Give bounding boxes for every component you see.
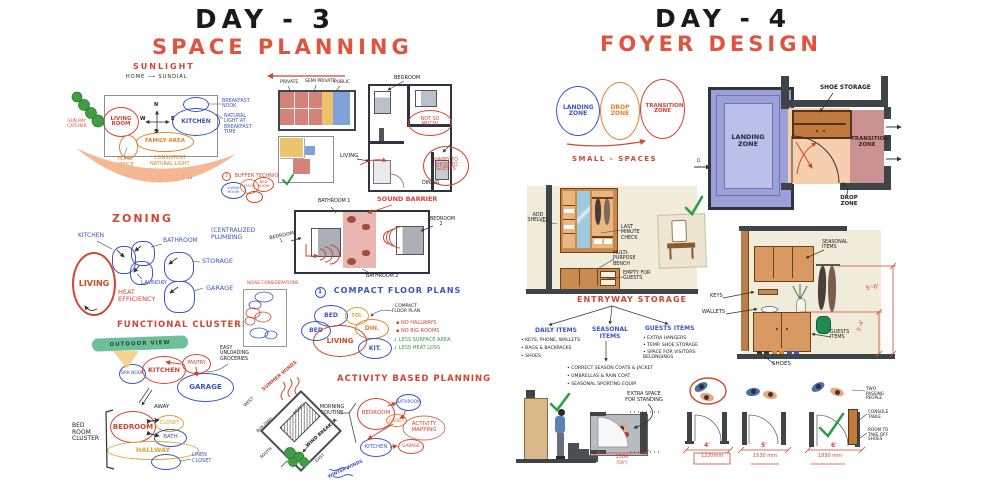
person-top-head: [816, 384, 821, 389]
sink-fixture: [362, 224, 370, 230]
plan-wall: [884, 166, 891, 184]
sketchbook-canvas: DAY - 3 SPACE PLANNING SUNLIGHT HOME ⟶ S…: [0, 0, 1005, 487]
hanging-coat: [828, 266, 836, 312]
compass-w: W: [140, 117, 146, 123]
width3-mm: 1830 mm: [812, 454, 848, 460]
bed: [415, 90, 437, 107]
morning-routine-label: MORNING ROUTINE: [318, 405, 346, 416]
wall-post: [546, 185, 552, 289]
drop-zone-bubble: DROP ZONE: [600, 82, 640, 140]
zoning-laundry-bubble: [130, 261, 153, 285]
person-top-head: [768, 392, 773, 397]
linen-closet-bubble: [151, 454, 181, 470]
site-north-label: NORTH: [292, 403, 306, 416]
cabinet-handle: [776, 328, 778, 330]
compact-note-4: ↓ LESS HEAT LOSS: [393, 346, 440, 352]
plan-wall: [280, 158, 304, 159]
plan-wall: [742, 412, 747, 445]
sink-fixture: [362, 250, 370, 256]
zoning-storage-label: STORAGE: [202, 258, 233, 265]
width3-ft: 6': [824, 443, 844, 450]
buffer-bedroom-bubble: BED ROOM: [253, 177, 274, 192]
seasonal-items-note: SEASONAL ITEMS: [822, 240, 854, 251]
compact-din-bubble: DIN.: [355, 319, 389, 339]
compact-number-icon: 1: [315, 287, 326, 298]
zoning-living-bubble: LIVING: [72, 252, 116, 316]
cluster-bedroom-bubble: BEDROOM: [110, 411, 156, 443]
guests-items-title: GUESTS ITEMS: [645, 326, 694, 333]
wind-breaker-trees-icon: [285, 448, 309, 467]
pantry-bubble: PANTRY: [182, 354, 211, 374]
console-leg: [691, 248, 693, 259]
sun-ray-catcher-label: SUN RAY CATCHER: [64, 119, 90, 128]
wardrobe-cabinet: [560, 188, 618, 253]
outdoor-view-bar: OUTDOOR VIEW: [92, 335, 188, 351]
daily-item-3: • SHOES: [521, 354, 541, 359]
mirror-panel: [577, 191, 590, 248]
centralized-plumbing-note: (CENTRALIZED PLUMBING: [211, 228, 265, 241]
activity-kitchen-label: KITCHEN: [365, 445, 387, 450]
shoe-storage-label: SHOE STORAGE: [820, 85, 871, 91]
guests-item-1: • EXTRA HANGERS: [643, 336, 686, 341]
activity-title: ACTIVITY BASED PLANNING: [337, 375, 491, 385]
ceiling-line: [739, 226, 847, 231]
guests-item-3: • SPACE FOR VISITORS BELONGINGS: [643, 350, 701, 360]
daily-item-1: • KEYS, PHONE, WALLETS: [521, 338, 580, 343]
floor-line: [526, 289, 698, 294]
semi-private-label: SEMI PRIVATE: [305, 79, 336, 84]
cabinet-handle: [786, 328, 788, 330]
landing-zone-bubble-label: LANDING ZONE: [563, 105, 593, 117]
functional-clusters-title: FUNCTIONAL CLUSTERS: [117, 321, 249, 331]
compact-din-label: DIN.: [365, 326, 380, 332]
drop-zone-bubble-label: DROP ZONE: [608, 105, 632, 117]
folded-towels: [564, 209, 574, 213]
cluster-kitchen-label: KITCHEN: [148, 367, 180, 374]
buffer-extra-bubble: [246, 191, 263, 203]
brk-nook-label: BRK NOOK: [121, 372, 144, 376]
activity-bedroom-label: BEDROOM: [362, 411, 391, 417]
width-study-arcs: [695, 415, 848, 446]
width1-ft: 4': [697, 443, 717, 450]
plan-wall: [280, 108, 322, 109]
family-area-bubble: FAMILY AREA: [136, 132, 194, 152]
compass-e: E: [171, 117, 174, 123]
activity-closet-bubble: CLOSET: [386, 414, 407, 427]
two-passing-note: TWO PASSING PEOPLE: [866, 387, 894, 401]
plan-wall: [840, 183, 891, 190]
sound-barrier-plan: [294, 210, 430, 274]
cluster-closet-label: CLOSET: [160, 421, 179, 426]
vignette-mirror: [671, 220, 687, 243]
plan-wall: [370, 141, 404, 144]
plan-wall: [720, 441, 729, 444]
zoning-garage-label: GARAGE: [206, 285, 233, 292]
day4-subtitle: FOYER DESIGN: [600, 33, 820, 57]
breakfast-nook-bubble: [183, 97, 209, 112]
floor-line: [737, 354, 895, 359]
activity-mapping-label: ACTIVITY MAPPING: [408, 421, 440, 433]
sound-bathroom1-label: BATHROOM 1: [318, 199, 350, 204]
plan-wall: [781, 412, 786, 445]
public-zone-area: [305, 146, 315, 155]
wind-breaker-label: WIND BREAKER: [305, 418, 338, 449]
happy-to-show-bubble: HAPPY TO SHOW TO GUESTS: [423, 146, 469, 186]
compact-annotation: COMPACT FLOOR PLAN: [390, 304, 422, 314]
shelf-line: [592, 236, 613, 238]
compact-kit-bubble: KIT.: [358, 338, 392, 359]
shoe-slot: [600, 271, 616, 278]
buffer-number-icon: 1: [222, 172, 231, 181]
guests-item-2: • TEMP. SHOE STORAGE: [643, 343, 698, 348]
width1-mm: 1220mm: [696, 454, 728, 460]
day4-title: DAY - 4: [655, 5, 765, 33]
compact-living-label: LIVING: [327, 338, 354, 345]
cabinet-handle: [823, 130, 825, 132]
noise-considerations-title: NOISE CONSIDERATIONS: [247, 281, 299, 286]
guest-plan-living-label: LIVING: [340, 153, 358, 159]
zoning-garage-bubble: [164, 281, 195, 313]
shelf-line: [563, 219, 575, 220]
shoe-storage-cabinet: [792, 110, 852, 139]
person-top-head: [699, 384, 704, 389]
seasonal-item-1: • CORRECT SEASON COATS & JACKET: [567, 366, 653, 371]
lower-cabinet: [753, 312, 811, 352]
bench-door-line: [597, 269, 598, 286]
plan-wall: [685, 441, 694, 444]
person-top-head: [835, 390, 840, 395]
public-zone-area: [333, 92, 350, 125]
site-building-label: BUILDING: [256, 417, 274, 434]
sound-bedroom1-label: BEDROOM 1: [269, 232, 293, 247]
winter-winds-label: WINTER WINDS: [328, 460, 365, 481]
daily-items-title: DAILY ITEMS: [535, 328, 577, 335]
hanging-coat: [595, 199, 601, 225]
vase: [796, 298, 806, 313]
plan-wall: [884, 107, 891, 119]
small-spaces-label: SMALL - SPACES: [572, 156, 657, 164]
folded-towels: [594, 239, 602, 244]
activity-bathroom-bubble: BATHROOM: [396, 394, 421, 411]
last-minute-check-note: LAST MINUTE CHECK: [621, 225, 651, 241]
site-west-label: WEST: [243, 397, 255, 409]
cabinet-door-line: [773, 247, 774, 278]
compact-plans-title: 1 COMPACT FLOOR PLANS: [315, 287, 461, 298]
standing-dim-mm: 1500: [604, 455, 640, 461]
door-frame: [741, 231, 749, 351]
coat-hook-bar: [816, 264, 840, 266]
kitchen-bubble: KITCHEN: [172, 108, 220, 136]
width2-ft: 5': [754, 443, 774, 450]
person-legs: [557, 433, 564, 457]
sound-barrier-label: SOUND BARRIER: [377, 196, 437, 203]
folded-towels: [604, 239, 612, 244]
keys-note: KEYS: [710, 294, 723, 300]
upper-cabinets: [754, 246, 814, 282]
not-so-much-label: NOT SO MUCH!: [417, 118, 443, 128]
noise-diagram-box: [243, 289, 287, 347]
compact-note-2: ▪ NO BIG ROOMS: [396, 329, 439, 335]
plan-wall: [881, 76, 888, 107]
plan-wall: [809, 412, 814, 447]
semi-private-zone-area: [322, 92, 333, 125]
foyer-door-label: D: [697, 159, 700, 164]
activity-garage-label: GARAGE: [402, 444, 420, 448]
compact-note-3: ↓ LESS SURFACE AREA: [393, 338, 450, 344]
sunlight-home-sundial: HOME ⟶ SUNDIAL: [126, 75, 188, 81]
multi-purpose-bench-note: MULTI-PURPOSE BENCH: [613, 251, 649, 267]
console-table: [848, 409, 858, 445]
seasonal-items-title: SEASONAL ITEMS: [592, 327, 628, 340]
person-head: [558, 409, 565, 416]
outdoor-view-label: OUTDOOR VIEW: [109, 339, 170, 347]
compact-kit-label: KIT.: [369, 346, 381, 352]
cabinet-door-line: [781, 313, 782, 348]
day3-subtitle: SPACE PLANNING: [152, 36, 400, 60]
width2-mm: 1530 mm: [749, 454, 781, 460]
guest-backpack: [816, 316, 831, 334]
zoning-living-label: LIVING: [79, 280, 110, 288]
site-south-label: SOUTH: [259, 447, 273, 460]
cluster-bedroom-label: BEDROOM: [113, 424, 153, 431]
compact-bed1-label: BED: [324, 313, 338, 319]
breakfast-nook-note: BREAKFAST NOOK: [222, 99, 252, 110]
sunlight-title: SUNLIGHT: [133, 63, 195, 72]
family-area-label: FAMILY AREA: [145, 139, 185, 145]
plan-wall: [781, 183, 792, 190]
private-label: PRIVATE: [280, 80, 298, 85]
seasonal-item-3: • SEASONAL SPORTING EQUIP.: [567, 382, 637, 387]
activity-kitchen-bubble: KITCHEN: [360, 438, 392, 457]
shelf-line: [563, 233, 575, 234]
toilet-fixture: [347, 258, 356, 265]
person-top-head: [619, 426, 624, 431]
standing-dim-in: (59"): [604, 461, 640, 466]
landing-zone-bubble: LANDING ZONE: [556, 86, 600, 136]
closet-panel: [524, 398, 548, 460]
zoning-bathroom-label: BATHROOM: [163, 238, 198, 245]
closet-rod: [592, 197, 613, 199]
sun-path-label: SUN PATH: [144, 175, 195, 181]
heat-efficiency-note: HEAT EFFICIENCY: [118, 289, 160, 304]
foyer-transition-label: TRANSITION ZONE: [851, 136, 883, 148]
site-diagram: [261, 377, 353, 478]
add-shelves-note: ADD SHELVES: [527, 213, 549, 224]
console-vignette: [657, 213, 707, 269]
zoning-storage-bubble: [164, 252, 194, 282]
privacy-plan: [278, 90, 356, 131]
day3-title: DAY - 3: [195, 6, 325, 35]
guest-plan-dining-label: DINING: [422, 181, 439, 186]
sofa: [373, 160, 391, 184]
plan-wall: [687, 412, 692, 444]
compact-note-1: ▪ NO HALLWAYS: [396, 321, 436, 327]
cabinet-handle: [816, 130, 818, 132]
pantry-label: PANTRY: [187, 362, 205, 367]
kitchen-label: KITCHEN: [181, 119, 211, 125]
bed: [374, 91, 391, 114]
small-floor-plan: [278, 136, 334, 183]
plan-wall: [590, 450, 606, 454]
shelf-line: [563, 205, 575, 206]
empty-for-guests-note: EMPTY FOR GUESTS: [623, 271, 653, 282]
buffer-bedroom-label: BED ROOM: [254, 181, 273, 188]
public-label: PUBLIC: [334, 80, 350, 85]
entryway-storage-title: ENTRYWAY STORAGE: [577, 296, 687, 305]
hallway-label: HALLWAY: [136, 447, 170, 454]
extra-space-label: EXTRA SPACE FOR STANDING: [622, 392, 666, 403]
happy-to-show-label: HAPPY TO SHOW TO GUESTS: [432, 159, 460, 173]
activity-garage-bubble: GARAGE: [398, 439, 424, 454]
living-room-label: LIVING ROOM: [104, 117, 138, 128]
plan-wall: [590, 412, 606, 416]
cluster-garage-bubble: GARAGE: [177, 373, 234, 402]
plan-wall: [789, 100, 888, 107]
hanging-coat: [604, 199, 610, 225]
plan-wall: [781, 76, 789, 109]
kitchen-counter: [379, 128, 384, 141]
cabinet-door-line: [792, 247, 793, 278]
bedroom-cluster-label: BED ROOM CLUSTER: [72, 423, 104, 443]
compact-annotation-leader: [371, 310, 392, 316]
shoes-note: SHOES: [772, 361, 791, 367]
person-torso: [555, 416, 565, 433]
zone-sequence-arrow: [567, 141, 645, 146]
foyer-drop-label: DROP ZONE: [836, 195, 862, 207]
plan-wall: [304, 138, 305, 158]
transition-zone-bubble-label: TRANSITION ZONE: [646, 104, 680, 115]
bed: [311, 228, 341, 257]
zoning-title: ZONING: [112, 213, 173, 225]
summer-winds-label: SUMMER WINDS: [261, 360, 298, 392]
cabinet-shelf-line: [794, 123, 846, 125]
wallets-note: WALLETS: [702, 310, 725, 316]
cluster-garage-label: GARAGE: [189, 384, 222, 391]
console-leg: [669, 248, 671, 259]
foyer-landing-label: LANDING ZONE: [726, 134, 770, 149]
person-top-head: [751, 389, 756, 394]
guest-plan-bedroom-label: BEDROOM: [394, 76, 420, 82]
natural-light-note: NATURAL LIGHT AT BREAKFAST TIME: [224, 114, 260, 135]
compact-toi-label: TOI.: [351, 314, 362, 319]
semi-zone-area: [280, 138, 303, 157]
toilet-fixture: [347, 216, 356, 223]
consistent-light-note: * CONSISTENT NATURAL LIGHT: [150, 156, 194, 167]
private-zone-area: [293, 159, 310, 174]
daily-item-2: • BAGS & BACKPACKS: [521, 346, 571, 351]
not-so-much-bubble: NOT SO MUCH!: [408, 110, 452, 136]
compact-plans-title-text: COMPACT FLOOR PLANS: [334, 286, 462, 295]
activity-bathroom-label: BATHROOM: [396, 400, 420, 404]
linen-closet-label: LINEN CLOSET: [192, 453, 220, 464]
sound-bedroom2-label: BEDROOM 2: [430, 217, 452, 228]
shoe-slot: [600, 279, 616, 286]
living-room-bubble: LIVING ROOM: [103, 107, 139, 137]
sound-bathroom2-label: BATHROOM 2: [366, 274, 398, 279]
bench-door-line: [579, 269, 580, 286]
site-east-label: EAST: [315, 453, 326, 464]
bed: [396, 226, 424, 255]
seasonal-item-2: • UMBRELLAS & RAIN COAT: [567, 374, 630, 379]
person-top-head: [704, 395, 709, 400]
console-table-note: CONSOLE TABLE: [868, 410, 894, 419]
ground-zigzag: [281, 461, 311, 467]
zoning-kitchen-label: KITCHEN: [78, 233, 104, 240]
base-line: [516, 459, 596, 463]
easy-unloading-note: EASY UNLOADING GROCERIES: [220, 346, 256, 362]
summer-wind-squiggles: [281, 377, 299, 400]
transition-zone-bubble: TRANSITION ZONE: [640, 79, 685, 139]
cluster-bath-label: BATH: [163, 435, 178, 441]
folded-towels: [564, 225, 574, 229]
take-off-shoes-note: ROOM TO TAKE OFF SHOES: [868, 428, 894, 442]
key-rail: [758, 289, 778, 295]
activity-closet-label: CLOSET: [389, 419, 405, 423]
compass-s: S: [154, 130, 158, 136]
plan-wall: [640, 412, 647, 454]
guests-items-note: GUESTS ITEMS: [830, 330, 858, 341]
home-office-label: HOME OFFICE: [112, 157, 138, 168]
person-bag: [623, 432, 629, 437]
entry-bench: [560, 268, 620, 290]
compass-n: N: [154, 103, 158, 109]
plan-wall: [722, 412, 727, 444]
away-label: AWAY: [154, 404, 169, 410]
